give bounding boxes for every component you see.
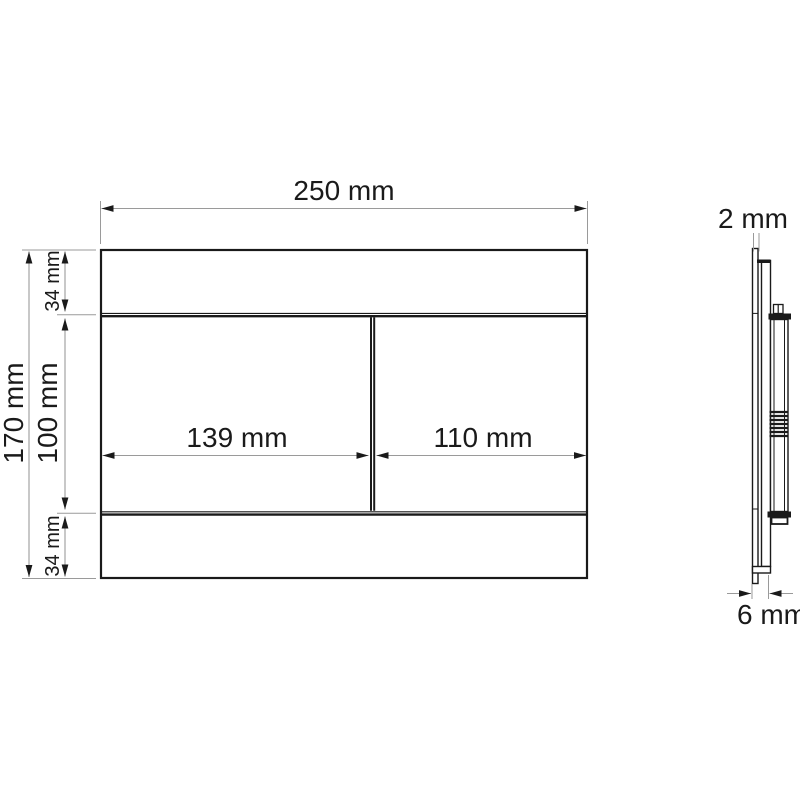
overall-height-label: 170 mm [0,362,29,463]
dim-overall-width: 250 mm [101,175,588,244]
front-panel-profile [753,249,759,584]
actuator-mechanism [768,305,792,525]
flush-plate-side-view [753,249,792,584]
right-button-width-label: 110 mm [433,422,532,453]
dim-total-depth: 6 mm [727,575,800,630]
flush-plate-dimension-drawing: 250 mm 170 mm 34 mm 100 mm 34 mm 139 mm … [0,0,800,801]
dim-bottom-strip-height: 34 mm [42,515,65,576]
total-depth-label: 6 mm [737,599,800,630]
frame-bottom-foot [753,567,771,574]
dim-center-height: 100 mm [32,315,96,513]
bottom-strip-height-label: 34 mm [42,515,64,576]
mounting-frame-profile [762,261,771,567]
plate-outline [101,250,587,578]
center-height-label: 100 mm [32,362,63,463]
dim-top-strip-height: 34 mm [42,250,65,311]
overall-width-label: 250 mm [293,175,394,206]
technical-drawing-page: 250 mm 170 mm 34 mm 100 mm 34 mm 139 mm … [0,0,800,801]
flush-plate-front-view [101,250,587,578]
dim-plate-thickness: 2 mm [718,203,788,252]
left-button-width-label: 139 mm [186,422,287,453]
frame-top-lip [757,260,771,264]
top-strip-height-label: 34 mm [42,250,64,311]
actuator-top-flange [769,314,792,320]
spring-ribs [770,412,789,436]
plate-thickness-label: 2 mm [718,203,788,234]
actuator-bottom-cap [772,518,788,525]
actuator-bottom-flange [768,512,792,518]
